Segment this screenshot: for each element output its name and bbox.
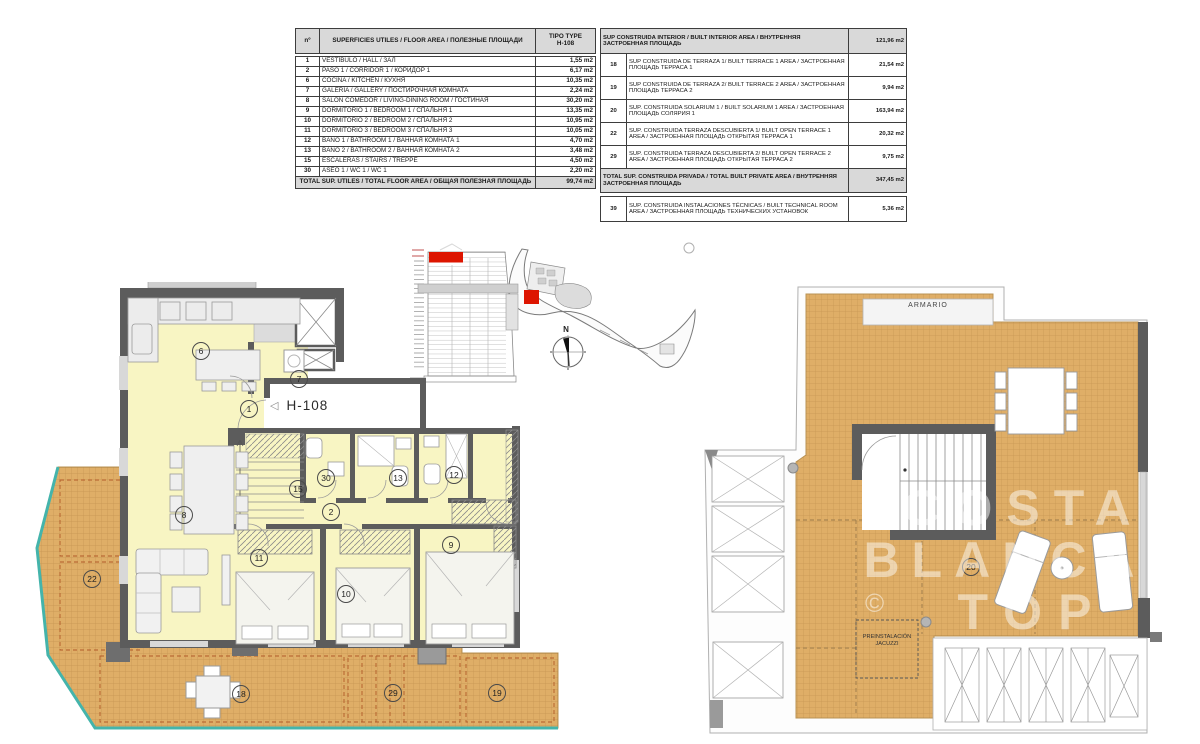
floor-area-row-area: 10,05 m2: [536, 127, 596, 137]
floor-area-row-num: 6: [296, 77, 320, 87]
floor-area-row-num: 1: [296, 57, 320, 67]
room-label-13: 13: [389, 469, 407, 487]
built-area-header-value: 121,96 m2: [849, 29, 907, 54]
built-area-row-desc: SUP CONSTRUIDA DE TERRAZA 2/ BUILT TERRA…: [627, 77, 849, 100]
floor-area-col-type: TIPO TYPE H-108: [536, 29, 596, 54]
floor-area-total-row: TOTAL SUP. UTILES / TOTAL FLOOR AREA / О…: [296, 177, 596, 189]
floor-area-row-area: 4,70 m2: [536, 137, 596, 147]
built-area-total-label: TOTAL SUP. CONSTRUIDA PRIVADA / TOTAL BU…: [601, 169, 849, 193]
floor-area-table-header: nº SUPERFICIES UTILES / FLOOR AREA / ПОЛ…: [295, 28, 596, 54]
technical-room-table: 39 SUP. CONSTRUIDA INSTALACIONES TÉCNICA…: [600, 196, 907, 222]
unit-entrance-label: ◁ H-108: [270, 398, 328, 413]
floor-area-row-desc: ASEO 1 / WC 1 / WC 1: [320, 167, 536, 177]
built-area-total-value: 347,45 m2: [849, 169, 907, 193]
room-label-8: 8: [175, 506, 193, 524]
floor-area-row-area: 4,50 m2: [536, 157, 596, 167]
floor-area-row-num: 11: [296, 127, 320, 137]
built-area-row-desc: SUP. CONSTRUIDA SOLARIUM 1 / BUILT SOLAR…: [627, 100, 849, 123]
unit-number: H-108: [286, 398, 328, 413]
floor-area-row-area: 1,55 m2: [536, 57, 596, 67]
floor-area-row-desc: COCINA / KITCHEN / КУХНЯ: [320, 77, 536, 87]
floor-area-row-num: 10: [296, 117, 320, 127]
floor-area-row-area: 2,20 m2: [536, 167, 596, 177]
floor-area-col-desc: SUPERFICIES UTILES / FLOOR AREA / ПОЛЕЗН…: [320, 29, 536, 54]
floor-area-row: 10DORMITORIO 2 / BEDROOM 2 / СПАЛЬНЯ 210…: [296, 117, 596, 127]
floor-area-row-desc: DORMITORIO 2 / BEDROOM 2 / СПАЛЬНЯ 2: [320, 117, 536, 127]
built-area-row-desc: SUP. CONSTRUIDA TERRAZA DESCUBIERTA 1/ B…: [627, 123, 849, 146]
jacuzzi-line2: JACUZZI: [851, 641, 923, 648]
technical-num: 39: [601, 197, 627, 222]
entrance-arrow-icon: ◁: [270, 399, 278, 412]
built-area-row-value: 163,94 m2: [849, 100, 907, 123]
floor-area-row-num: 13: [296, 147, 320, 157]
room-label-10: 10: [337, 585, 355, 603]
floor-area-row: 15ESCALERAS / STAIRS / TREPPE4,50 m2: [296, 157, 596, 167]
floor-area-row-num: 7: [296, 87, 320, 97]
built-area-row: 20SUP. CONSTRUIDA SOLARIUM 1 / BUILT SOL…: [601, 100, 907, 123]
room-label-2: 2: [322, 503, 340, 521]
built-area-table: SUP CONSTRUIDA INTERIOR / BUILT INTERIOR…: [600, 28, 907, 193]
room-label-11: 11: [250, 549, 268, 567]
floor-area-row: 2PASO 1 / CORRIDOR 1 / КОРИДОР 16,17 m2: [296, 67, 596, 77]
floor-area-row-area: 10,95 m2: [536, 117, 596, 127]
floor-area-row-area: 2,24 m2: [536, 87, 596, 97]
floor-area-row-desc: PASO 1 / CORRIDOR 1 / КОРИДОР 1: [320, 67, 536, 77]
floor-area-row-num: 2: [296, 67, 320, 77]
room-label-18: 18: [232, 685, 250, 703]
built-area-row-desc: SUP. CONSTRUIDA TERRAZA DESCUBIERTA 2/ B…: [627, 146, 849, 169]
room-label-7: 7: [290, 370, 308, 388]
built-area-row-value: 9,94 m2: [849, 77, 907, 100]
floor-area-row-desc: SALÓN COMEDOR / LIVING-DINING ROOM / ГОС…: [320, 97, 536, 107]
floor-area-row-area: 13,35 m2: [536, 107, 596, 117]
built-area-row-value: 20,32 m2: [849, 123, 907, 146]
floor-area-table: 1VESTÍBULO / HALL / ЗАЛ1,55 m22PASO 1 / …: [295, 56, 596, 189]
floor-area-col-num: nº: [296, 29, 320, 54]
built-area-row: 29SUP. CONSTRUIDA TERRAZA DESCUBIERTA 2/…: [601, 146, 907, 169]
floor-area-row-num: 9: [296, 107, 320, 117]
floor-area-row: 9DORMITORIO 1 / BEDROOM 1 / СПАЛЬНЯ 113,…: [296, 107, 596, 117]
room-label-30: 30: [317, 469, 335, 487]
built-area-row-num: 29: [601, 146, 627, 169]
floor-area-row-num: 15: [296, 157, 320, 167]
room-label-12: 12: [445, 466, 463, 484]
floor-area-row-area: 30,20 m2: [536, 97, 596, 107]
jacuzzi-label: PREINSTALACIÓN JACUZZI: [851, 634, 923, 648]
floor-area-total-label: TOTAL SUP. UTILES / TOTAL FLOOR AREA / О…: [296, 177, 536, 189]
floor-area-row: 13BAÑO 2 / BATHROOM 2 / ВАННАЯ КОМНАТА 2…: [296, 147, 596, 157]
floor-area-row-desc: ESCALERAS / STAIRS / TREPPE: [320, 157, 536, 167]
floor-area-row-desc: DORMITORIO 3 / BEDROOM 3 / СПАЛЬНЯ 3: [320, 127, 536, 137]
built-area-total-row: TOTAL SUP. CONSTRUIDA PRIVADA / TOTAL BU…: [601, 169, 907, 193]
room-label-22: 22: [83, 570, 101, 588]
floor-area-row-desc: BAÑO 2 / BATHROOM 2 / ВАННАЯ КОМНАТА 2: [320, 147, 536, 157]
room-label-6: 6: [192, 342, 210, 360]
floor-area-row-area: 10,35 m2: [536, 77, 596, 87]
floor-area-row: 30ASEO 1 / WC 1 / WC 12,20 m2: [296, 167, 596, 177]
room-label-1: 1: [240, 400, 258, 418]
floor-area-row: 11DORMITORIO 3 / BEDROOM 3 / СПАЛЬНЯ 310…: [296, 127, 596, 137]
room-label-19: 19: [488, 684, 506, 702]
built-area-row-desc: SUP CONSTRUIDA DE TERRAZA 1/ BUILT TERRA…: [627, 54, 849, 77]
built-area-row: 19SUP CONSTRUIDA DE TERRAZA 2/ BUILT TER…: [601, 77, 907, 100]
floor-area-row-area: 6,17 m2: [536, 67, 596, 77]
built-area-header-desc: SUP CONSTRUIDA INTERIOR / BUILT INTERIOR…: [601, 29, 849, 54]
page: nº SUPERFICIES UTILES / FLOOR AREA / ПОЛ…: [0, 0, 1200, 744]
built-area-row-num: 18: [601, 54, 627, 77]
floor-area-total-value: 99,74 m2: [536, 177, 596, 189]
built-area-row-value: 21,54 m2: [849, 54, 907, 77]
floor-area-row-area: 3,48 m2: [536, 147, 596, 157]
floor-area-row: 7GALERÍA / GALLERY / ПОСТИРОЧНАЯ КОМНАТА…: [296, 87, 596, 97]
floor-area-row-desc: BAÑO 1 / BATHROOM 1 / ВАННАЯ КОМНАТА 1: [320, 137, 536, 147]
room-label-29: 29: [384, 684, 402, 702]
armario-label: ARMARIO: [863, 302, 993, 309]
built-area-row: 22SUP. CONSTRUIDA TERRAZA DESCUBIERTA 1/…: [601, 123, 907, 146]
room-label-15: 15: [289, 480, 307, 498]
floor-area-row-desc: GALERÍA / GALLERY / ПОСТИРОЧНАЯ КОМНАТА: [320, 87, 536, 97]
built-area-row-num: 19: [601, 77, 627, 100]
floor-area-row: 12BAÑO 1 / BATHROOM 1 / ВАННАЯ КОМНАТА 1…: [296, 137, 596, 147]
floor-area-row-num: 30: [296, 167, 320, 177]
floor-area-row: 8SALÓN COMEDOR / LIVING-DINING ROOM / ГО…: [296, 97, 596, 107]
room-label-20: 20: [962, 558, 980, 576]
technical-desc: SUP. CONSTRUIDA INSTALACIONES TÉCNICAS /…: [627, 197, 849, 222]
type-line2: H-108: [538, 41, 593, 48]
jacuzzi-line1: PREINSTALACIÓN: [851, 634, 923, 641]
room-label-9: 9: [442, 536, 460, 554]
floor-area-row-num: 8: [296, 97, 320, 107]
built-area-row-value: 9,75 m2: [849, 146, 907, 169]
built-area-row: 18SUP CONSTRUIDA DE TERRAZA 1/ BUILT TER…: [601, 54, 907, 77]
technical-value: 5,36 m2: [849, 197, 907, 222]
floor-area-row: 1VESTÍBULO / HALL / ЗАЛ1,55 m2: [296, 57, 596, 67]
floor-area-row-num: 12: [296, 137, 320, 147]
solarium-floor-plan: 20 ARMARIO PREINSTALACIÓN JACUZZI COSTA …: [695, 282, 1195, 744]
floor-area-row-desc: VESTÍBULO / HALL / ЗАЛ: [320, 57, 536, 67]
built-area-row-num: 20: [601, 100, 627, 123]
highlighted-floor-marker: [429, 252, 463, 263]
apartment-floor-plan: 67115301312281110922182919 ◁ H-108: [30, 282, 570, 744]
technical-room-row: 39 SUP. CONSTRUIDA INSTALACIONES TÉCNICA…: [601, 197, 907, 222]
built-area-row-num: 22: [601, 123, 627, 146]
floor-area-row: 6COCINA / KITCHEN / КУХНЯ10,35 m2: [296, 77, 596, 87]
floor-area-row-desc: DORMITORIO 1 / BEDROOM 1 / СПАЛЬНЯ 1: [320, 107, 536, 117]
